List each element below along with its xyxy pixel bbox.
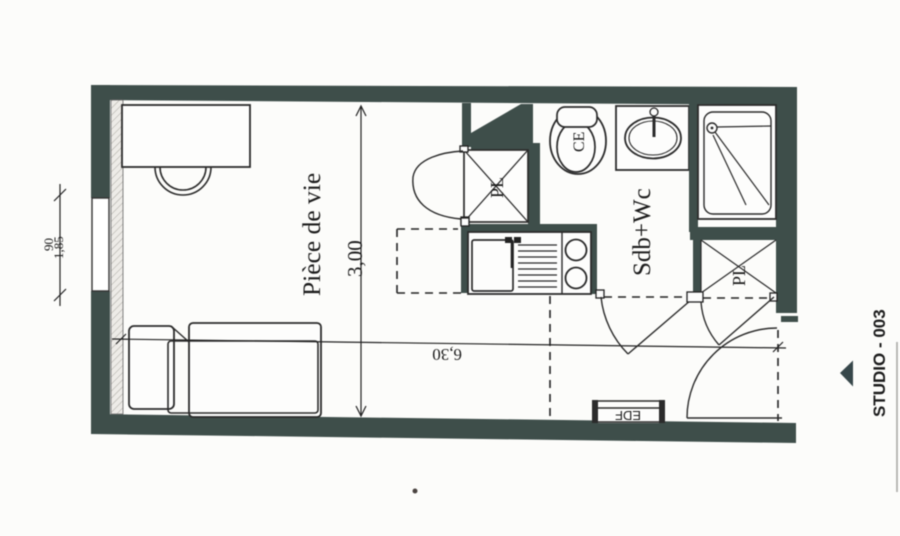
svg-text:6,30: 6,30: [432, 345, 462, 364]
svg-text:PL: PL: [487, 177, 507, 198]
svg-text:1,85: 1,85: [51, 236, 66, 259]
svg-text:EDF: EDF: [615, 408, 641, 423]
svg-text:3,00: 3,00: [343, 240, 367, 277]
svg-text:Pièce de vie: Pièce de vie: [297, 173, 326, 296]
svg-text:CE: CE: [571, 132, 588, 152]
svg-text:Sdb+Wc: Sdb+Wc: [629, 188, 656, 276]
svg-text:STUDIO - 003: STUDIO - 003: [870, 309, 889, 417]
svg-text:PL: PL: [729, 265, 749, 286]
